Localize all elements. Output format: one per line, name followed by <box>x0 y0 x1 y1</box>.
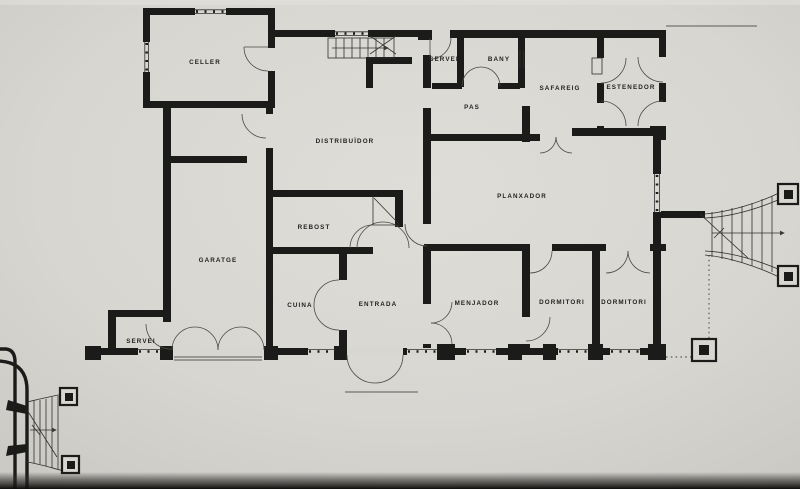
floor-plan-drawing: CELLER SERVEI BANY SAFAREIG ESTENEDOR PA… <box>0 0 800 489</box>
room-label-entrada: ENTRADA <box>359 301 397 308</box>
room-label-bany: BANY <box>488 56 510 63</box>
room-label-servei-bottom: SERVEI <box>126 338 156 345</box>
room-label-planxador: PLANXADOR <box>497 193 547 200</box>
paper-background <box>0 0 800 489</box>
room-label-dormitori-2: DORMITORI <box>601 299 647 306</box>
room-label-safareig: SAFAREIG <box>540 85 581 92</box>
room-label-menjador: MENJADOR <box>455 300 500 307</box>
room-label-estenedor: ESTENEDOR <box>606 84 655 91</box>
room-label-distribuidor: DISTRIBUÏDOR <box>316 137 375 145</box>
photo-bottom-edge <box>0 472 800 489</box>
room-label-garatge: GARATGE <box>199 257 238 264</box>
room-label-dormitori-1: DORMITORI <box>539 299 585 306</box>
room-label-pas: PAS <box>464 104 480 111</box>
floor-plan-photo: CELLER SERVEI BANY SAFAREIG ESTENEDOR PA… <box>0 0 800 489</box>
room-label-cuina: CUINA <box>287 302 312 309</box>
room-label-servei-top: SERVEI <box>429 56 459 63</box>
room-label-rebost: REBOST <box>298 224 331 231</box>
room-label-celler: CELLER <box>189 59 221 66</box>
photo-top-edge <box>0 0 800 5</box>
